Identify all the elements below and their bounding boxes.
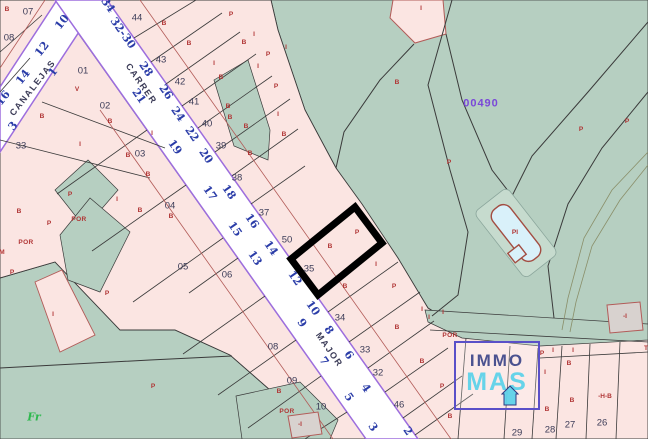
house-number-label: 24 xyxy=(169,105,187,124)
building-use-letter: I xyxy=(253,32,255,39)
parcel-number-label: 35 xyxy=(304,264,315,274)
building-use-letter: I xyxy=(52,312,54,319)
building-use-letter: I xyxy=(116,197,118,204)
building-use-letter: I xyxy=(552,348,554,355)
building-use-letter: -H-B xyxy=(598,394,612,401)
parcel-number-label: 39 xyxy=(216,141,227,151)
por-label: POR xyxy=(279,409,294,416)
parcel-number-label: 32 xyxy=(373,368,384,378)
building-use-letter: I xyxy=(421,307,423,314)
building-use-letter: P xyxy=(10,270,14,277)
cadastral-map[interactable]: CANALEJASCARRERMAJOR3432-302826242220181… xyxy=(0,0,648,439)
building-use-letter: B xyxy=(282,132,287,139)
house-number-label: 16 xyxy=(243,212,261,231)
building-use-letter: P xyxy=(229,12,233,19)
building-use-letter: P xyxy=(355,230,359,237)
street-name-label: MAJOR xyxy=(314,331,344,369)
house-number-label: 16 xyxy=(0,89,12,108)
house-number-label: 10 xyxy=(53,13,71,32)
building-use-letter: B xyxy=(228,115,233,122)
building-use-letter: P xyxy=(540,351,544,358)
parcel-number-label: 07 xyxy=(23,7,34,17)
building-use-letter: B xyxy=(448,414,453,421)
street-name-label: CANALEJAS xyxy=(8,58,57,118)
parcel-number-label: 28 xyxy=(545,425,556,435)
house-number-label: 1 xyxy=(46,66,59,79)
building-use-letter: B xyxy=(138,208,143,215)
building-use-letter: P xyxy=(105,291,109,298)
building-use-letter: B xyxy=(545,407,550,414)
parcel-number-label: 34 xyxy=(335,313,346,323)
building-use-letter: B xyxy=(248,151,253,158)
building-use-letter: I xyxy=(151,131,153,138)
building-use-letter: -I xyxy=(623,314,627,321)
fr-label: Fr xyxy=(27,412,40,423)
house-number-label: 8 xyxy=(322,324,335,337)
building-use-letter: I xyxy=(257,64,259,71)
house-number-label: 22 xyxy=(183,125,201,144)
parcel-number-label: 43 xyxy=(156,55,167,65)
por-label: POR xyxy=(442,333,457,340)
parcel-number-label: 38 xyxy=(232,173,243,183)
parcel-number-label: 10 xyxy=(316,402,327,412)
parcel-number-label: 09 xyxy=(287,376,298,386)
building-use-letter: P xyxy=(274,84,278,91)
parcel-number-label: 03 xyxy=(135,149,146,159)
house-number-label: 18 xyxy=(220,183,238,202)
map-labels: CANALEJASCARRERMAJOR3432-302826242220181… xyxy=(0,0,648,439)
house-number-label: 12 xyxy=(286,269,304,288)
building-use-letter: P xyxy=(68,192,72,199)
house-number-label: 19 xyxy=(166,138,184,157)
parcel-number-label: 01 xyxy=(78,66,89,76)
parcel-number-label: 50 xyxy=(282,235,293,245)
parcel-number-label: 41 xyxy=(189,97,200,107)
building-use-letter: P xyxy=(440,384,444,391)
building-use-letter: B xyxy=(570,398,575,405)
building-use-letter: B xyxy=(126,153,131,160)
house-number-label: 12 xyxy=(33,40,51,59)
street-name-label: CARRER xyxy=(124,62,159,106)
building-use-letter: B xyxy=(420,359,425,366)
parcel-number-label: 46 xyxy=(394,400,405,410)
building-use-letter: B xyxy=(395,325,400,332)
building-use-letter: B xyxy=(567,361,572,368)
house-number-label: 5 xyxy=(342,391,355,404)
building-use-letter: B xyxy=(328,244,333,251)
building-use-letter: P xyxy=(266,52,270,59)
building-use-letter: B xyxy=(146,172,151,179)
parcel-number-label: 29 xyxy=(512,428,523,438)
por-label: POR xyxy=(18,240,33,247)
house-number-label: 10 xyxy=(304,299,322,318)
building-use-letter: B xyxy=(395,80,400,87)
building-use-letter: B xyxy=(169,214,174,221)
building-use-letter: M xyxy=(0,250,5,257)
parcel-number-label: 27 xyxy=(565,420,576,430)
por-label: POR xyxy=(71,217,86,224)
house-number-label: 20 xyxy=(197,147,215,166)
building-use-letter: -I xyxy=(298,422,302,429)
house-number-label: 13 xyxy=(246,249,264,268)
parcel-number-label: 42 xyxy=(175,77,186,87)
building-use-letter: B xyxy=(162,21,167,28)
building-use-letter: I xyxy=(420,6,422,13)
building-use-letter: B xyxy=(226,104,231,111)
house-number-label: 3 xyxy=(6,120,19,133)
building-use-letter: I xyxy=(572,348,574,355)
house-number-label: 14 xyxy=(262,239,280,258)
house-number-label: 28 xyxy=(137,60,155,79)
house-number-label: 6 xyxy=(342,349,355,362)
building-use-letter: B xyxy=(242,40,247,47)
house-number-label: 9 xyxy=(295,317,308,330)
parcel-number-label: 05 xyxy=(178,262,189,272)
building-use-letter: T xyxy=(644,346,648,353)
building-use-letter: B xyxy=(219,75,224,82)
building-use-letter: B xyxy=(277,389,282,396)
building-use-letter: B xyxy=(343,284,348,291)
house-number-label: 2 xyxy=(401,425,414,438)
building-use-letter: B xyxy=(5,7,10,14)
building-use-letter: P xyxy=(625,119,629,126)
house-number-label: 26 xyxy=(157,83,175,102)
house-number-label: 34 xyxy=(99,0,117,14)
building-use-letter: I xyxy=(79,142,81,149)
house-number-label: 32-30 xyxy=(108,15,137,50)
parcel-number-label: 02 xyxy=(100,101,111,111)
parcel-number-label: 33 xyxy=(16,141,27,151)
parcel-number-label: 06 xyxy=(222,270,233,280)
building-use-letter: V xyxy=(75,87,79,94)
zone-code-label: 00490 xyxy=(463,99,499,110)
building-use-letter: P xyxy=(151,384,155,391)
building-use-letter: P xyxy=(447,160,451,167)
building-use-letter: B xyxy=(108,119,113,126)
building-use-letter: I xyxy=(213,61,215,68)
building-use-letter: P xyxy=(579,127,583,134)
pool-label: PI xyxy=(512,230,518,237)
parcel-number-label: 33 xyxy=(360,345,371,355)
building-use-letter: I xyxy=(544,370,546,377)
house-number-label: 14 xyxy=(14,68,32,87)
parcel-number-label: 44 xyxy=(132,13,143,23)
house-number-label: 15 xyxy=(226,220,244,239)
parcel-number-label: 04 xyxy=(165,201,176,211)
building-use-letter: I xyxy=(285,45,287,52)
house-number-label: 4 xyxy=(359,382,372,395)
house-number-label: 21 xyxy=(130,87,148,106)
building-use-letter: B xyxy=(244,124,249,131)
house-number-label: 3 xyxy=(366,421,379,434)
building-use-letter: P xyxy=(392,284,396,291)
building-use-letter: B xyxy=(187,41,192,48)
immo-mas-watermark: IMMO MAS xyxy=(454,341,540,410)
building-use-letter: P xyxy=(47,221,51,228)
house-number-label: 7 xyxy=(317,355,330,368)
building-use-letter: I xyxy=(277,112,279,119)
parcel-number-label: 37 xyxy=(259,208,270,218)
parcel-number-label: 08 xyxy=(268,342,279,352)
building-use-letter: I xyxy=(375,262,377,269)
parcel-number-label: 26 xyxy=(597,418,608,428)
building-use-letter: I xyxy=(442,310,444,317)
parcel-number-label: 08 xyxy=(4,33,15,43)
building-use-letter: B xyxy=(17,209,22,216)
building-use-letter: B xyxy=(40,114,45,121)
house-number-label: 17 xyxy=(201,184,219,203)
parcel-number-label: 40 xyxy=(202,119,213,129)
house-icon xyxy=(501,385,519,407)
building-use-letter: I xyxy=(428,315,430,322)
